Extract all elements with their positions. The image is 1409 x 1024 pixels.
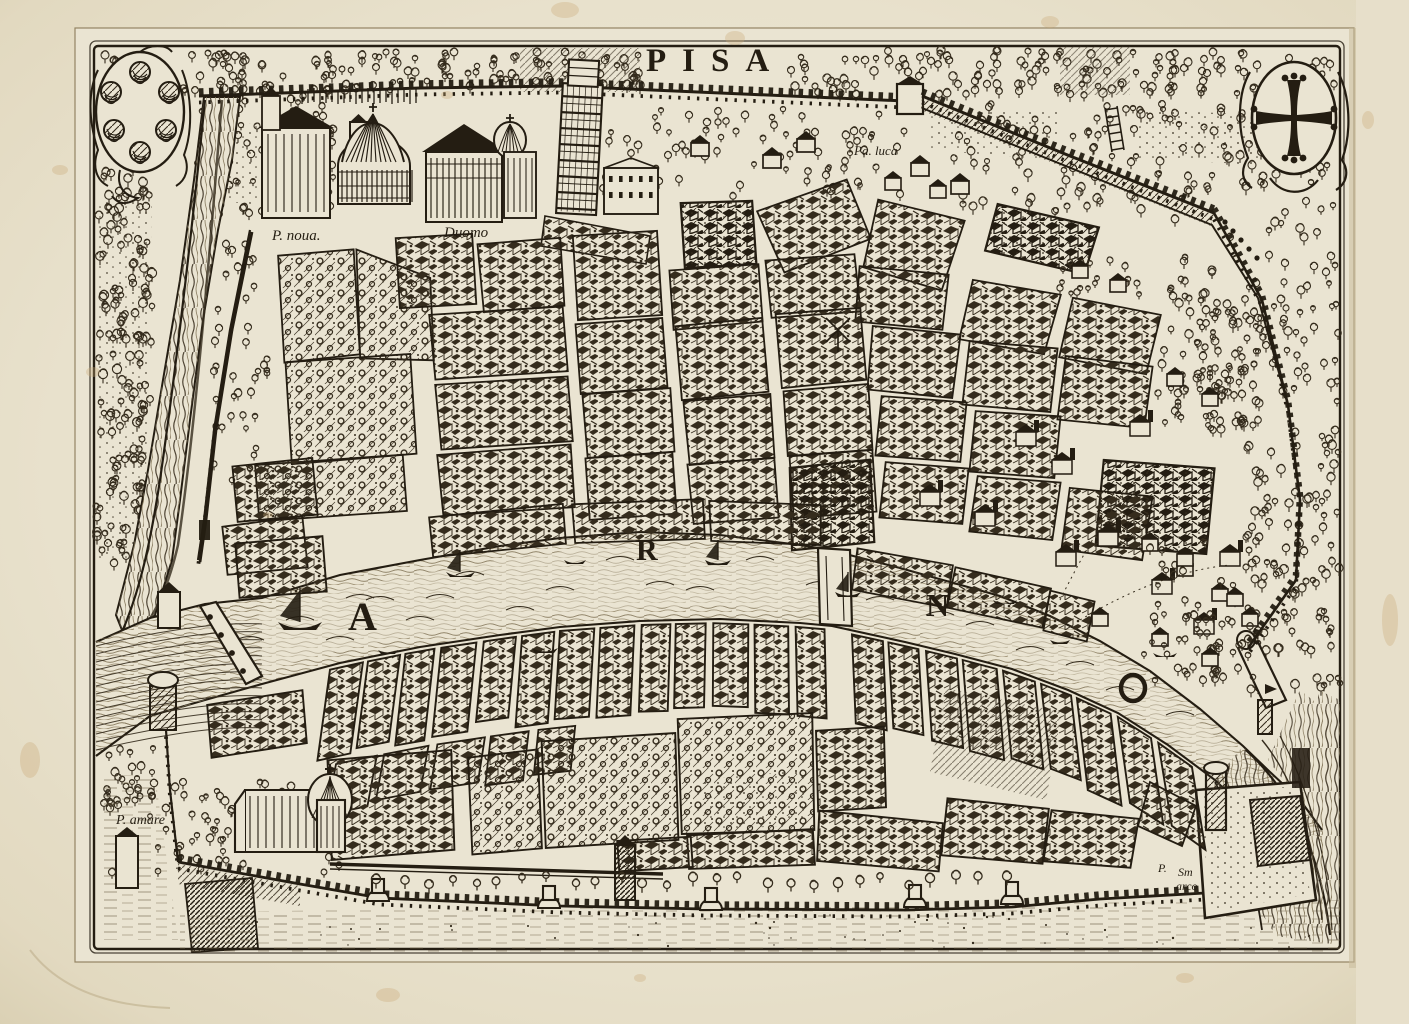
svg-text:Sm: Sm (1178, 865, 1193, 879)
svg-text:P. noua.: P. noua. (271, 228, 320, 244)
svg-text:N: N (926, 587, 949, 623)
svg-text:P.: P. (1157, 861, 1167, 875)
svg-text:PISA: PISA (646, 43, 785, 79)
svg-text:A: A (348, 594, 377, 639)
svg-text:R: R (636, 534, 658, 567)
svg-text:arco: arco (1176, 879, 1198, 893)
svg-text:Pa. luca: Pa. luca (853, 143, 898, 158)
svg-text:P. amare: P. amare (115, 813, 165, 828)
svg-text:Duomo: Duomo (443, 225, 489, 241)
